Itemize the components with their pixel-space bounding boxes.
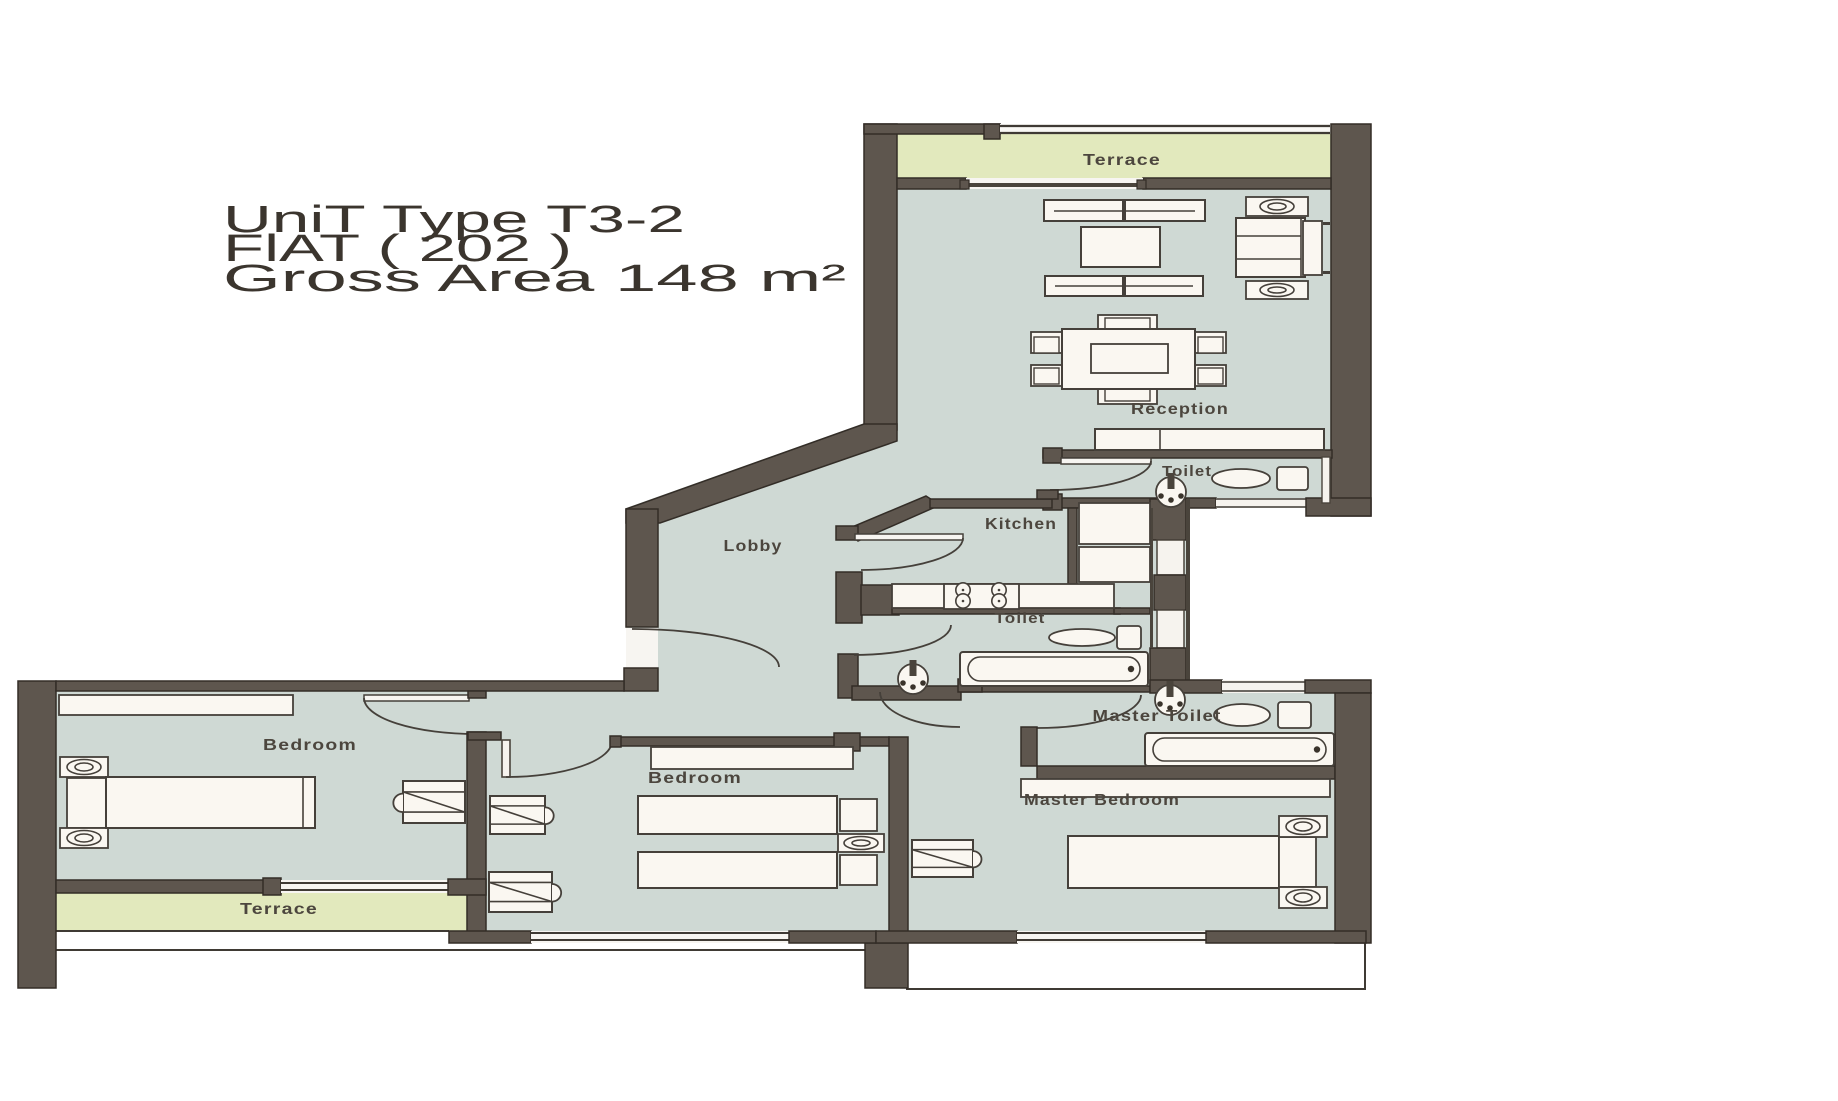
svg-text:Terrace: Terrace — [240, 901, 318, 918]
svg-text:Terrace: Terrace — [1083, 152, 1161, 169]
svg-text:Gross Area 148 m²: Gross Area 148 m² — [223, 258, 846, 300]
svg-text:Bedroom: Bedroom — [648, 770, 742, 787]
svg-text:Kitchen: Kitchen — [985, 516, 1057, 533]
svg-text:Bedroom: Bedroom — [263, 737, 357, 754]
svg-text:Lobby: Lobby — [724, 538, 783, 555]
svg-text:Master Bedroom: Master Bedroom — [1024, 792, 1180, 809]
svg-text:Toilet: Toilet — [1162, 463, 1212, 480]
svg-text:Master Toilet: Master Toilet — [1093, 708, 1222, 725]
svg-text:Reception: Reception — [1131, 401, 1229, 418]
svg-text:Toilet: Toilet — [995, 610, 1046, 627]
